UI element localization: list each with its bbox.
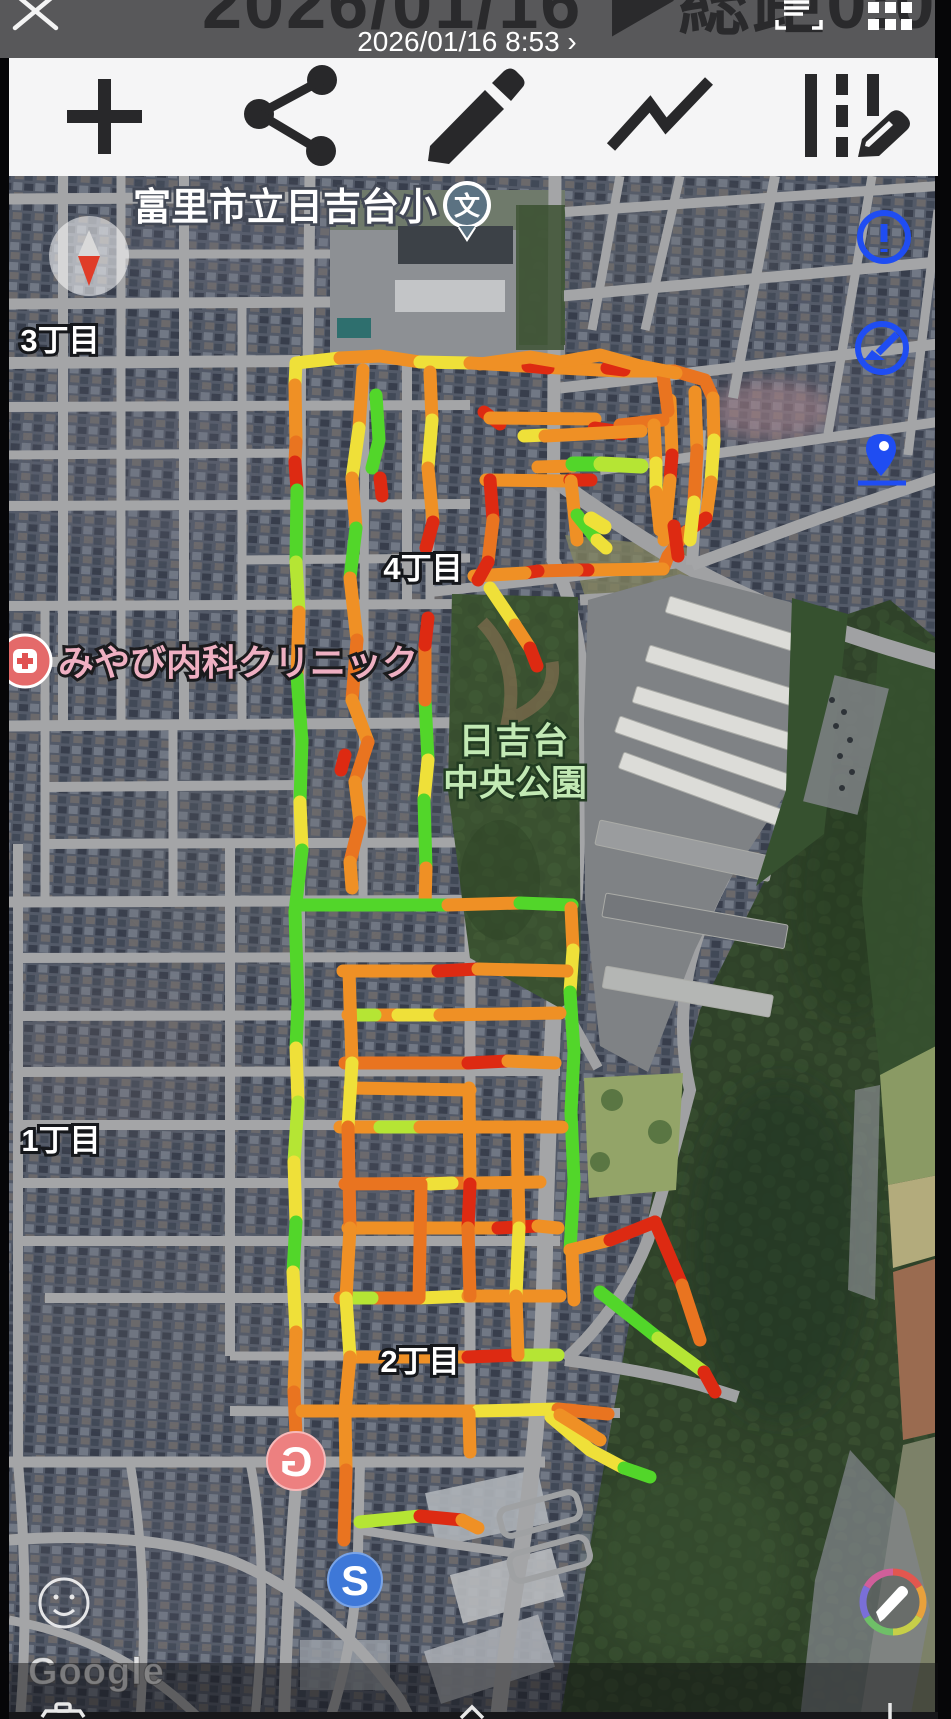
svg-text:みやび内科クリニック: みやび内科クリニック: [58, 642, 418, 683]
svg-text:3丁目: 3丁目: [20, 323, 99, 358]
svg-text:文: 文: [454, 191, 481, 221]
svg-text:2丁目: 2丁目: [380, 1344, 459, 1379]
svg-text:G: G: [280, 1438, 313, 1485]
svg-text:4丁目: 4丁目: [383, 551, 462, 586]
svg-text:1丁目: 1丁目: [21, 1123, 100, 1158]
svg-text:富里市立日吉台小: 富里市立日吉台小: [133, 186, 437, 229]
svg-text:S: S: [341, 1557, 369, 1604]
svg-text:中央公園: 中央公園: [443, 762, 587, 803]
svg-text:日吉台: 日吉台: [458, 720, 569, 761]
svg-text:2026/01/16 8:53 ›: 2026/01/16 8:53 ›: [357, 26, 577, 57]
